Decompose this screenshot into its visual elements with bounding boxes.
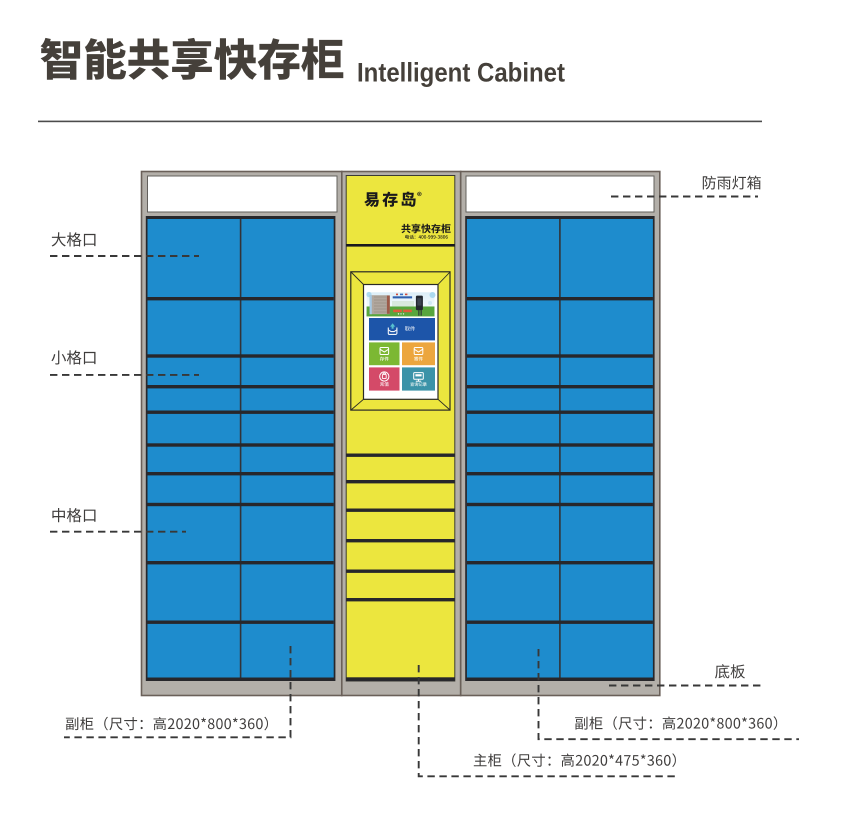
svg-text:Intelligent Cabinet: Intelligent Cabinet <box>357 58 565 88</box>
